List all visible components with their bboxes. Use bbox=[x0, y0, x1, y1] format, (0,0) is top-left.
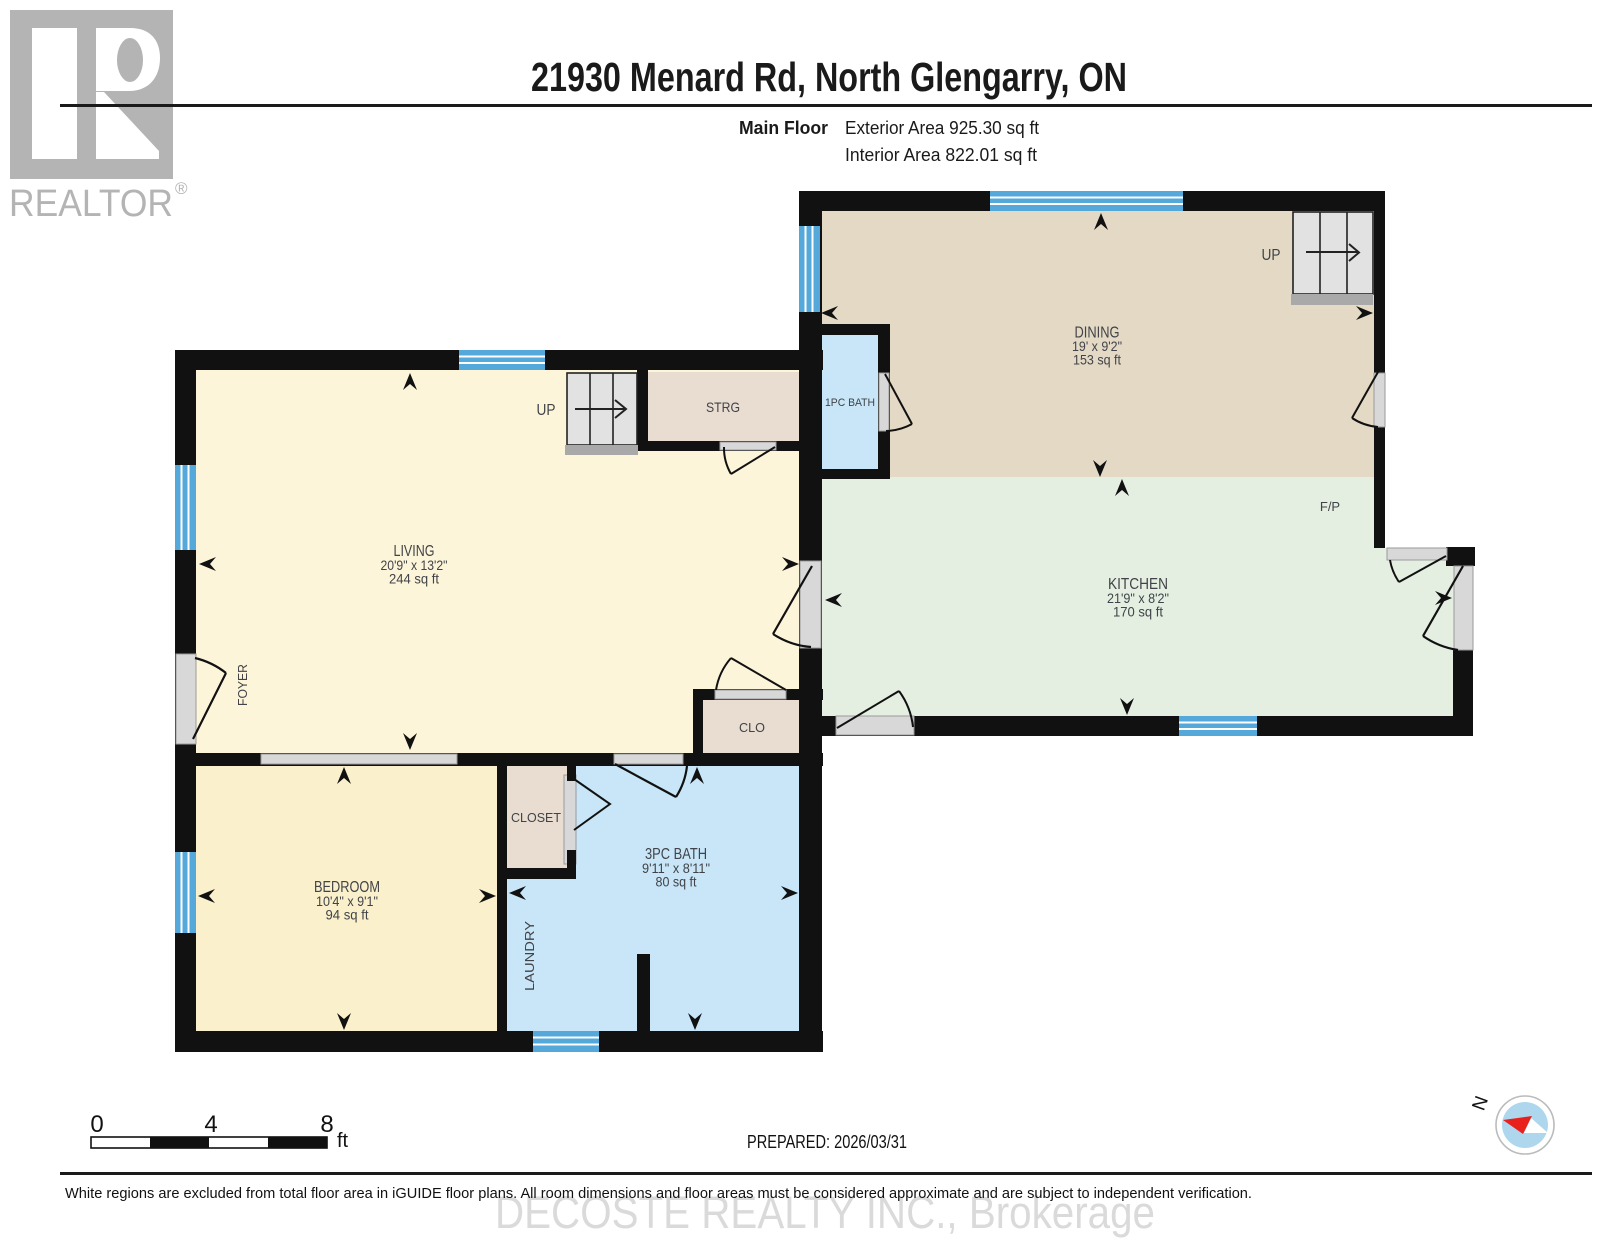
svg-text:PREPARED: 2026/03/31: PREPARED: 2026/03/31 bbox=[747, 1132, 907, 1152]
svg-text:STRG: STRG bbox=[706, 399, 740, 415]
svg-text:FOYER: FOYER bbox=[235, 664, 250, 706]
svg-text:N: N bbox=[1469, 1093, 1493, 1113]
svg-text:CLOSET: CLOSET bbox=[511, 810, 561, 825]
svg-text:153 sq ft: 153 sq ft bbox=[1073, 352, 1121, 368]
svg-text:ft: ft bbox=[337, 1130, 349, 1152]
svg-text:UP: UP bbox=[537, 402, 556, 419]
svg-text:4: 4 bbox=[204, 1111, 217, 1135]
svg-text:F/P: F/P bbox=[1320, 499, 1340, 514]
svg-text:UP: UP bbox=[1262, 247, 1281, 264]
svg-text:244 sq ft: 244 sq ft bbox=[389, 571, 439, 587]
svg-text:LAUNDRY: LAUNDRY bbox=[522, 921, 537, 991]
svg-text:CLO: CLO bbox=[739, 720, 765, 735]
svg-text:94 sq ft: 94 sq ft bbox=[326, 907, 369, 923]
svg-text:80 sq ft: 80 sq ft bbox=[656, 874, 697, 890]
svg-text:White regions are excluded fro: White regions are excluded from total fl… bbox=[65, 1185, 1252, 1202]
svg-text:170 sq ft: 170 sq ft bbox=[1113, 604, 1163, 620]
svg-text:1PC BATH: 1PC BATH bbox=[825, 397, 875, 409]
svg-text:0: 0 bbox=[90, 1111, 103, 1135]
